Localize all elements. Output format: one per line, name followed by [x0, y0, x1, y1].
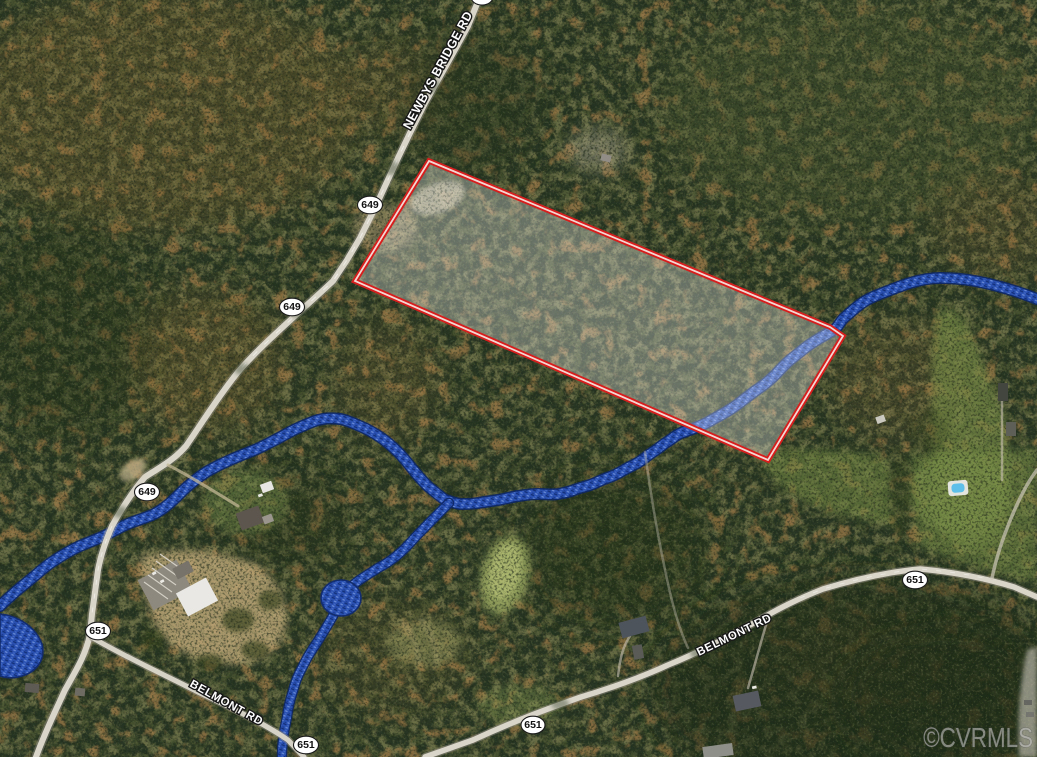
- svg-text:651: 651: [297, 739, 315, 751]
- svg-text:651: 651: [524, 719, 542, 731]
- svg-text:651: 651: [89, 625, 107, 637]
- svg-text:649: 649: [361, 199, 379, 211]
- svg-text:651: 651: [906, 574, 924, 586]
- svg-text:649: 649: [138, 486, 156, 498]
- svg-text:©CVRMLS: ©CVRMLS: [923, 723, 1033, 754]
- svg-text:649: 649: [283, 301, 301, 313]
